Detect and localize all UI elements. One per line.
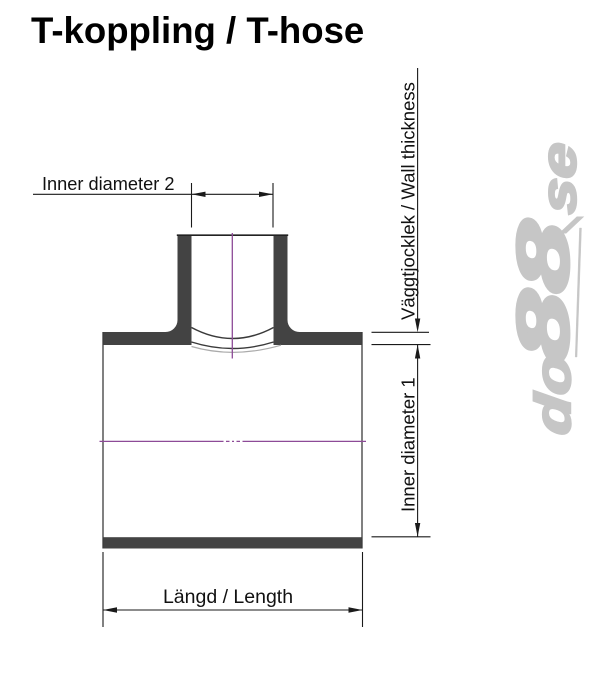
svg-text:Längd / Length: Längd / Length (163, 586, 293, 608)
svg-text:Väggtjocklek / Wall thickness: Väggtjocklek / Wall thickness (398, 82, 419, 320)
svg-text:do: do (525, 352, 581, 437)
svg-text:Inner diameter 2: Inner diameter 2 (42, 174, 174, 194)
svg-text:se: se (532, 140, 587, 217)
svg-text:Inner diameter 1: Inner diameter 1 (398, 377, 419, 512)
svg-text:T-koppling / T-hose: T-koppling / T-hose (31, 10, 364, 51)
svg-text:88: 88 (502, 216, 584, 365)
